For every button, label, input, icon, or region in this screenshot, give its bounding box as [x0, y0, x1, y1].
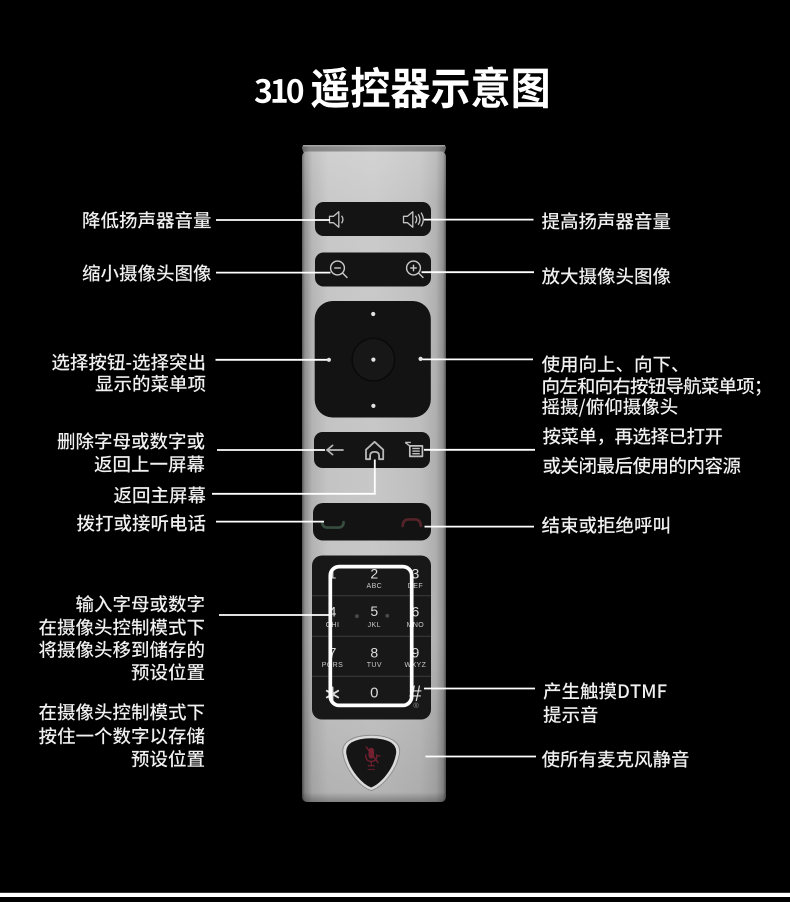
- svg-text:GHI: GHI: [326, 622, 340, 629]
- svg-text:MNO: MNO: [407, 622, 425, 629]
- svg-text:®: ®: [413, 701, 419, 710]
- svg-text:TUV: TUV: [367, 662, 382, 669]
- svg-text:5: 5: [370, 603, 378, 619]
- svg-text:PQRS: PQRS: [322, 662, 343, 669]
- svg-text:WXYZ: WXYZ: [404, 662, 426, 669]
- svg-text:8: 8: [370, 644, 378, 660]
- svg-text:ABC: ABC: [367, 583, 383, 590]
- svg-text:0: 0: [370, 685, 378, 702]
- svg-text:JKL: JKL: [368, 622, 381, 629]
